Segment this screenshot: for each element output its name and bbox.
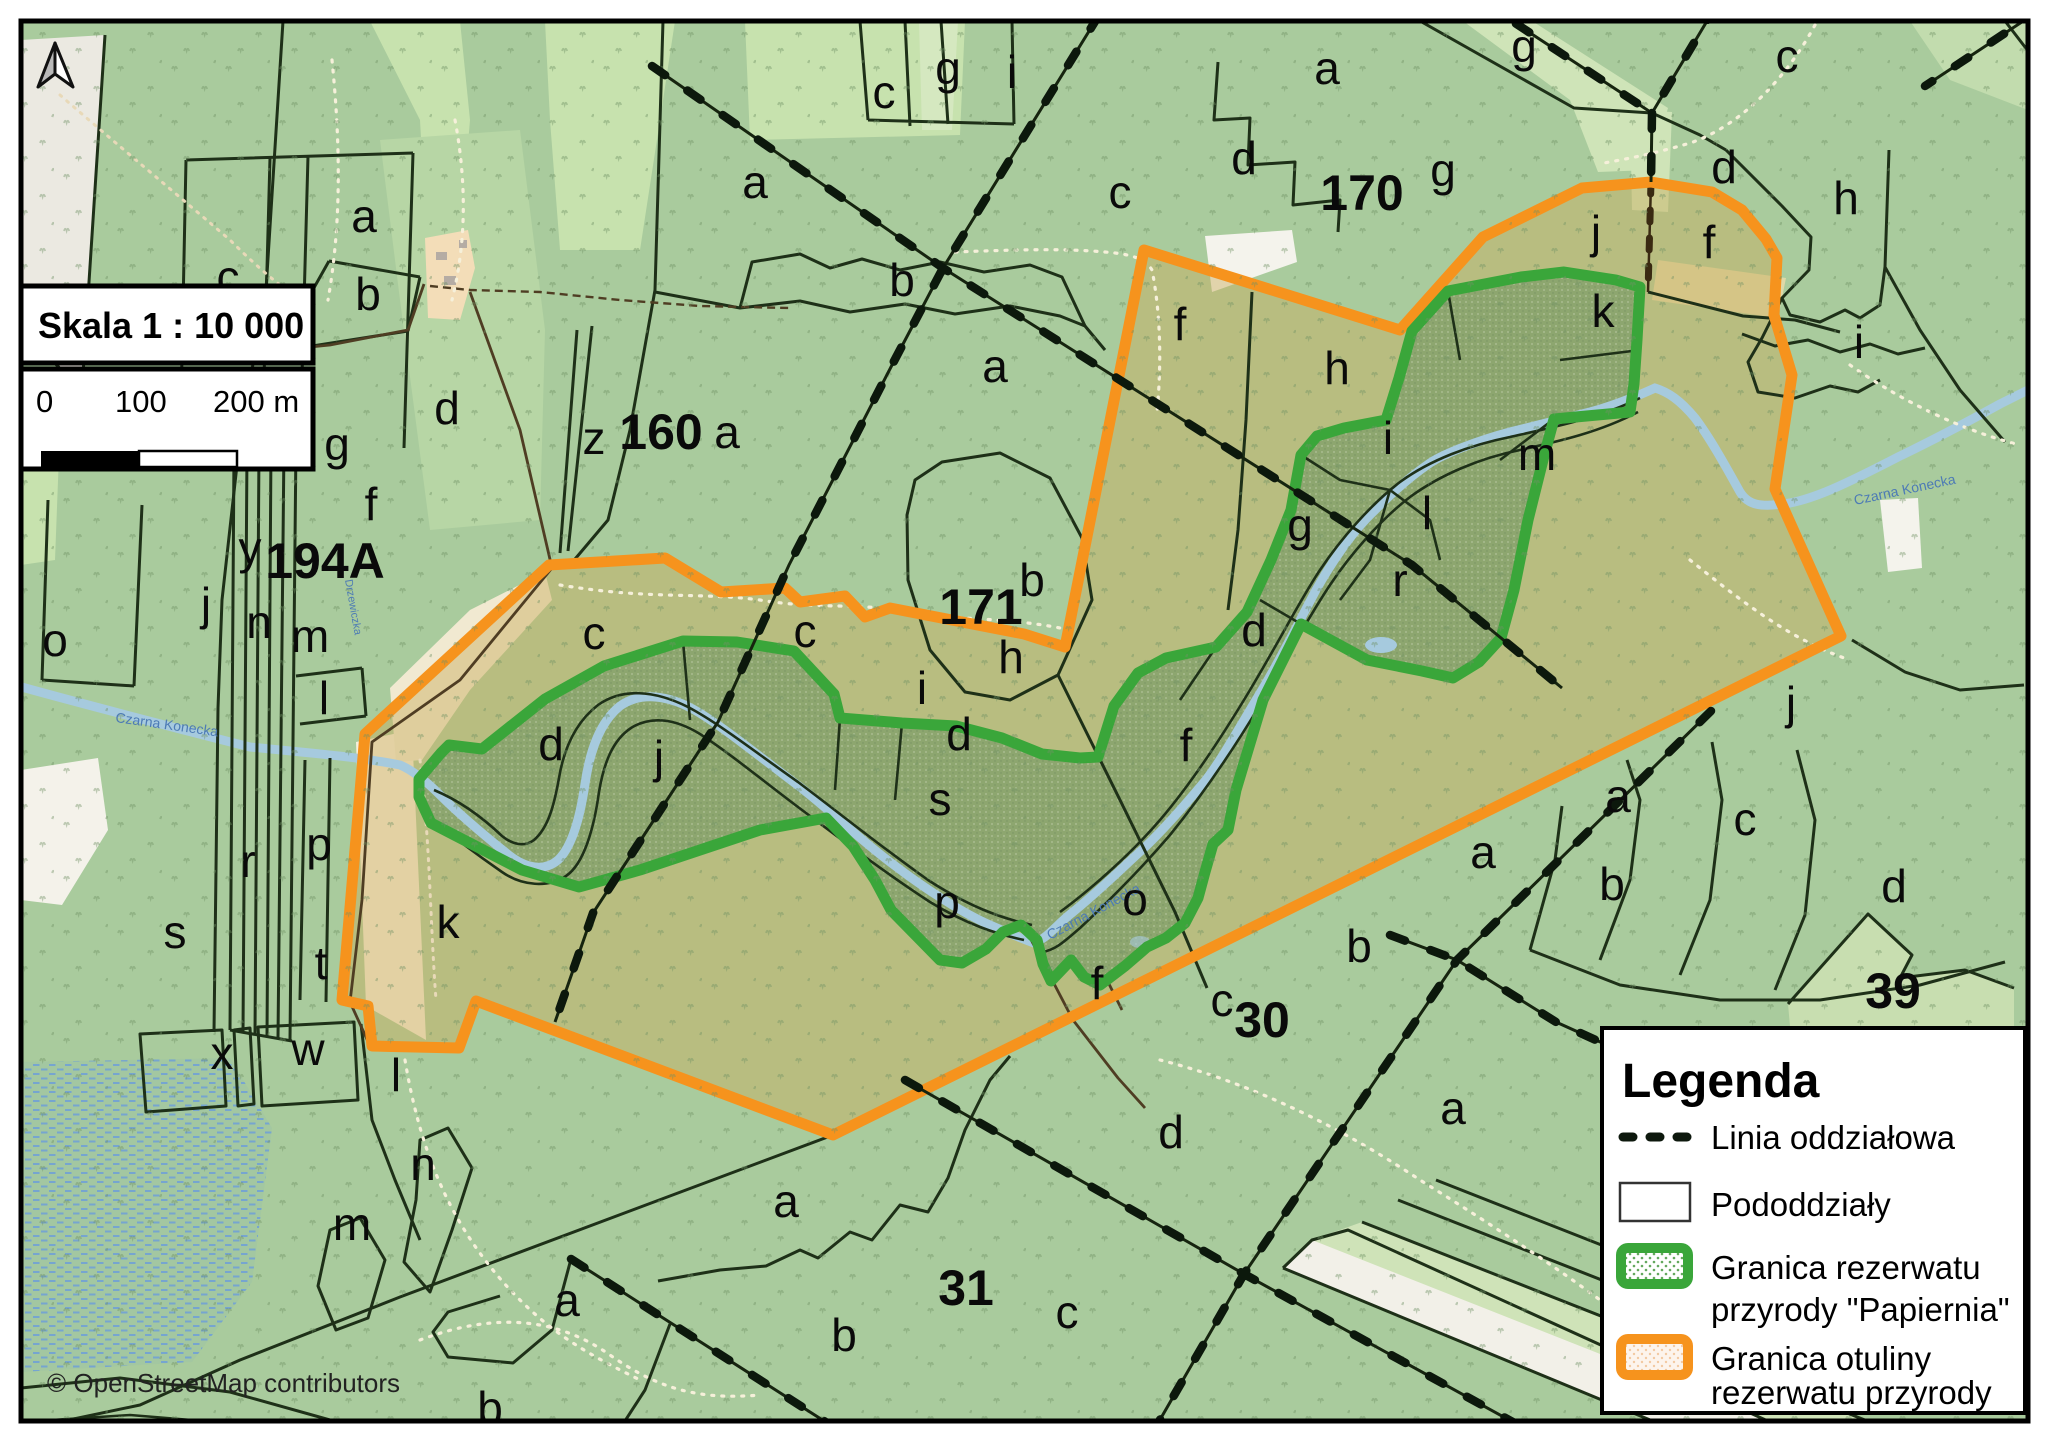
svg-text:g: g [935, 42, 961, 94]
svg-text:g: g [324, 418, 350, 470]
svg-text:a: a [351, 190, 377, 242]
svg-text:d: d [1231, 132, 1257, 184]
svg-text:Granica otuliny: Granica otuliny [1711, 1340, 1932, 1377]
svg-text:b: b [355, 268, 381, 320]
svg-text:i: i [1383, 412, 1393, 464]
svg-text:b: b [1019, 554, 1045, 606]
svg-text:b: b [1599, 858, 1625, 910]
svg-text:194A: 194A [265, 533, 385, 589]
svg-text:o: o [1122, 873, 1148, 925]
svg-text:z: z [583, 412, 606, 464]
svg-text:39: 39 [1865, 963, 1921, 1019]
svg-text:rezerwatu przyrody: rezerwatu przyrody [1711, 1374, 1992, 1411]
svg-text:a: a [773, 1175, 799, 1227]
svg-text:f: f [1180, 719, 1193, 771]
svg-text:c: c [583, 607, 606, 659]
svg-text:k: k [1592, 285, 1616, 337]
svg-text:c: c [1734, 793, 1757, 845]
svg-text:p: p [306, 818, 332, 870]
svg-text:m: m [1518, 428, 1556, 480]
svg-text:y: y [239, 522, 262, 574]
svg-text:f: f [1091, 957, 1104, 1009]
svg-text:31: 31 [938, 1260, 994, 1316]
svg-text:k: k [437, 896, 461, 948]
svg-text:c: c [794, 605, 817, 657]
svg-text:160: 160 [619, 404, 702, 460]
svg-text:m: m [291, 610, 329, 662]
svg-text:Pododdziały: Pododdziały [1711, 1186, 1891, 1223]
svg-text:j: j [199, 578, 211, 630]
svg-text:b: b [889, 254, 915, 306]
svg-text:j: j [652, 731, 664, 783]
svg-text:d: d [946, 708, 972, 760]
svg-text:c: c [1211, 974, 1234, 1026]
svg-text:i: i [1854, 316, 1864, 368]
svg-text:c: c [1776, 30, 1799, 82]
svg-text:l: l [319, 672, 329, 724]
svg-text:171: 171 [939, 579, 1022, 635]
svg-text:w: w [290, 1023, 325, 1075]
svg-text:m: m [333, 1198, 371, 1250]
svg-text:o: o [42, 614, 68, 666]
svg-text:l: l [1422, 487, 1432, 539]
svg-text:h: h [998, 631, 1024, 683]
svg-text:g: g [1287, 499, 1313, 551]
svg-text:d: d [538, 718, 564, 770]
svg-text:h: h [1833, 172, 1859, 224]
svg-text:a: a [1605, 770, 1631, 822]
svg-text:c: c [1056, 1286, 1079, 1338]
svg-text:200 m: 200 m [213, 384, 299, 419]
svg-text:30: 30 [1234, 992, 1290, 1048]
svg-text:a: a [1470, 826, 1496, 878]
svg-text:h: h [1324, 342, 1350, 394]
svg-text:f: f [365, 478, 378, 530]
svg-text:b: b [1346, 920, 1372, 972]
svg-text:Skala 1 : 10 000: Skala 1 : 10 000 [38, 305, 304, 346]
svg-text:© OpenStreetMap contributors: © OpenStreetMap contributors [47, 1368, 400, 1398]
svg-text:a: a [554, 1274, 580, 1326]
svg-text:d: d [1711, 141, 1737, 193]
svg-text:r: r [240, 835, 255, 887]
svg-text:Legenda: Legenda [1622, 1055, 1820, 1108]
svg-text:a: a [742, 156, 768, 208]
svg-text:a: a [714, 406, 740, 458]
svg-text:d: d [1241, 604, 1267, 656]
svg-text:170: 170 [1320, 165, 1403, 221]
svg-text:i: i [917, 662, 927, 714]
svg-text:g: g [1430, 144, 1456, 196]
svg-text:f: f [1174, 298, 1187, 350]
svg-text:Granica rezerwatu: Granica rezerwatu [1711, 1249, 1981, 1286]
svg-text:c: c [1109, 166, 1132, 218]
svg-text:a: a [982, 340, 1008, 392]
svg-text:n: n [246, 596, 272, 648]
svg-text:j: j [1784, 677, 1796, 729]
svg-text:c: c [873, 66, 896, 118]
svg-text:n: n [410, 1138, 436, 1190]
svg-text:j: j [1589, 206, 1601, 258]
svg-text:Linia oddziałowa: Linia oddziałowa [1711, 1119, 1956, 1156]
svg-text:s: s [164, 906, 187, 958]
svg-text:przyrody "Papiernia": przyrody "Papiernia" [1711, 1291, 2010, 1328]
svg-text:r: r [1392, 554, 1407, 606]
svg-text:d: d [1881, 860, 1907, 912]
svg-text:100: 100 [115, 384, 167, 419]
svg-text:i: i [1007, 46, 1017, 98]
svg-text:l: l [391, 1049, 401, 1101]
svg-text:0: 0 [36, 384, 53, 419]
svg-text:a: a [1440, 1082, 1466, 1134]
svg-text:b: b [831, 1309, 857, 1361]
svg-text:p: p [934, 876, 960, 928]
svg-text:s: s [929, 773, 952, 825]
svg-text:g: g [1511, 20, 1537, 72]
svg-text:x: x [211, 1027, 234, 1079]
svg-text:f: f [1703, 216, 1716, 268]
svg-text:d: d [434, 382, 460, 434]
svg-text:d: d [1158, 1106, 1184, 1158]
svg-text:t: t [315, 937, 328, 989]
svg-text:a: a [1314, 42, 1340, 94]
